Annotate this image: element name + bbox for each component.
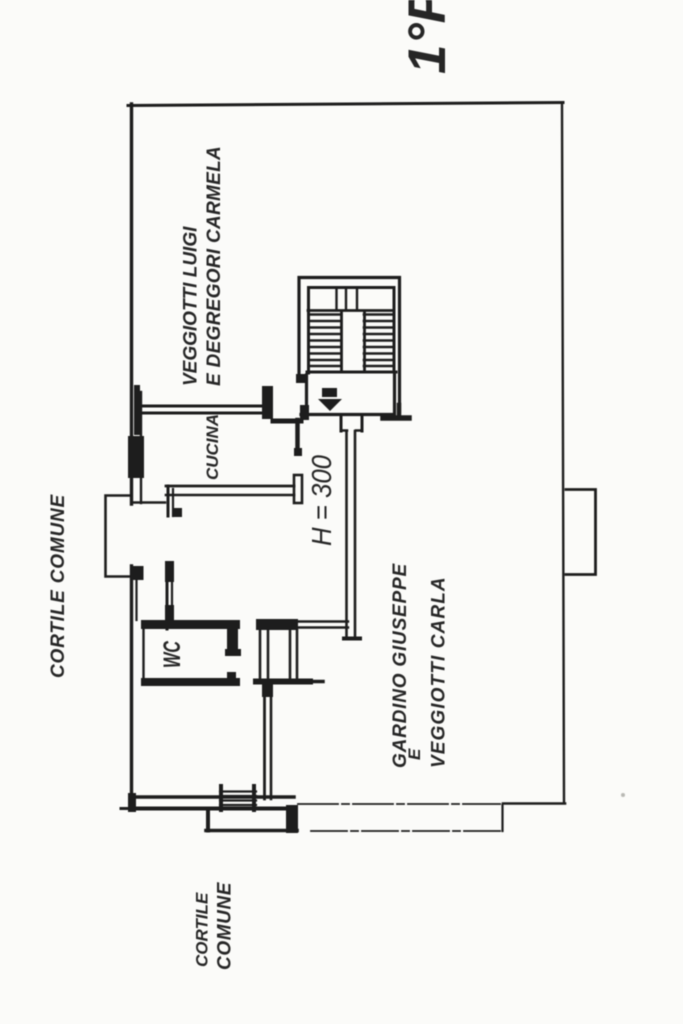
svg-text:CORTILE COMUNE: CORTILE COMUNE	[48, 494, 69, 678]
svg-text:COMUNE: COMUNE	[215, 881, 236, 970]
svg-text:CORTILE: CORTILE	[193, 892, 212, 967]
svg-text:H = 300: H = 300	[306, 455, 337, 546]
svg-text:E DEGREGORI CARMELA: E DEGREGORI CARMELA	[204, 146, 225, 386]
svg-text:CUCINA: CUCINA	[203, 414, 222, 480]
svg-text:E: E	[405, 748, 424, 760]
svg-text:VEGGIOTTI LUIGI: VEGGIOTTI LUIGI	[181, 226, 202, 386]
svg-text:VEGGIOTTI CARLA: VEGGIOTTI CARLA	[429, 576, 450, 768]
svg-text:GARDINO GIUSEPPE: GARDINO GIUSEPPE	[390, 563, 411, 768]
svg-text:1°P: 1°P	[398, 0, 457, 74]
svg-text:WC: WC	[159, 641, 186, 668]
